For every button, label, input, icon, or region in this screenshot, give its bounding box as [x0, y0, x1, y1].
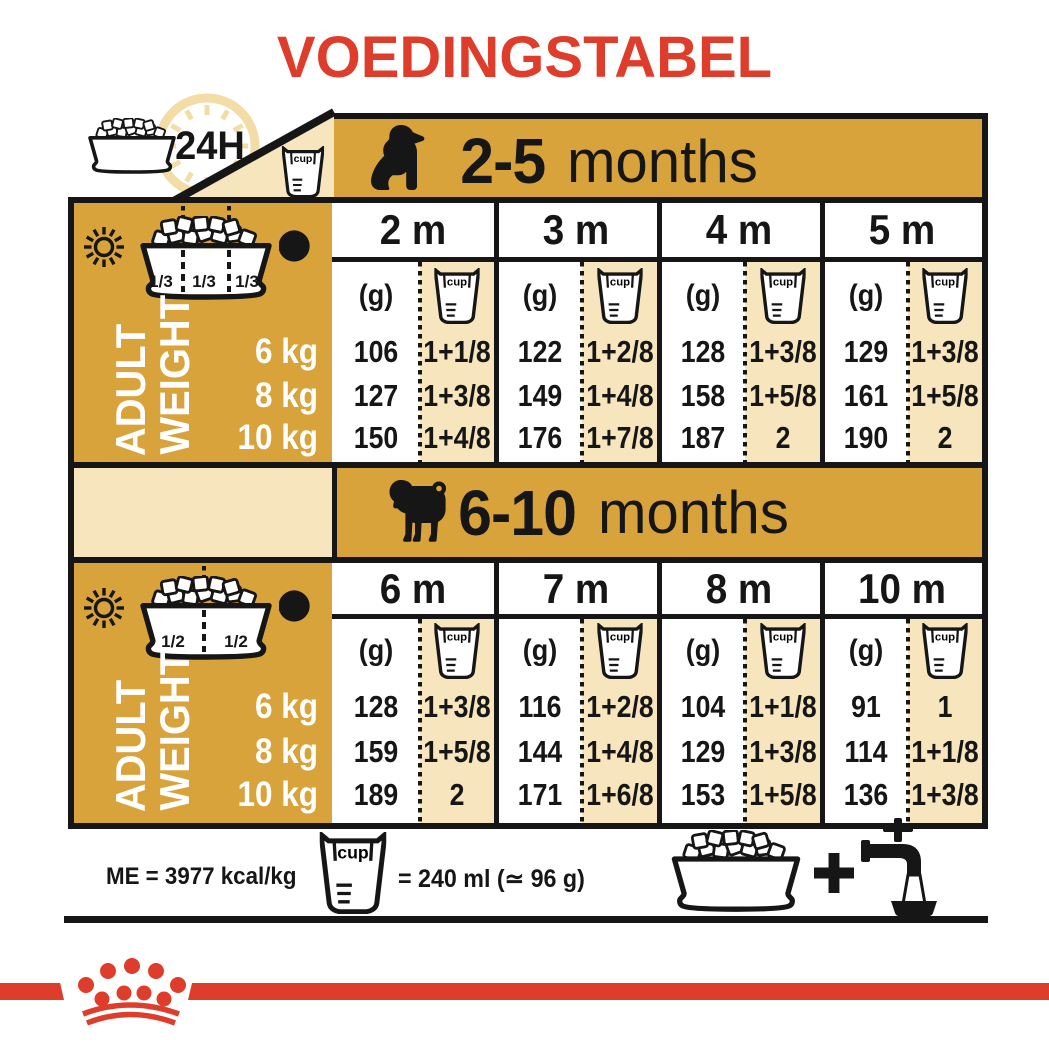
svg-text:cup: cup — [447, 276, 467, 288]
age-unit: months — [598, 478, 789, 547]
age-unit: months — [566, 127, 757, 196]
month-header: 6 m — [349, 563, 478, 614]
grams-unit: (g) — [830, 633, 902, 669]
moon-icon — [279, 226, 313, 266]
month-header: 5 m — [838, 203, 967, 257]
cups-value: 1+5/8 — [736, 378, 831, 414]
brand-stripe-left — [0, 983, 64, 1000]
cups-value: 1+1/8 — [410, 334, 505, 370]
bowl-fraction: 1/3 — [183, 268, 225, 296]
measuring-cup-icon: cup — [922, 268, 968, 324]
cups-value: 2 — [736, 420, 831, 456]
cups-value: 1 — [898, 689, 993, 725]
cups-value: 1+3/8 — [898, 777, 993, 813]
age-range: 6-10 — [458, 476, 576, 550]
cups-value: 1+6/8 — [573, 777, 668, 813]
column-border — [332, 468, 337, 557]
measuring-cup-icon: cup — [597, 623, 643, 679]
age-band-2-5-title: 2-5 months — [458, 119, 760, 203]
grams-unit: (g) — [340, 278, 412, 314]
grams-unit: (g) — [340, 633, 412, 669]
cups-value: 1+5/8 — [898, 378, 993, 414]
cups-value: 1+4/8 — [573, 734, 668, 770]
weight-row-label: 8 kg — [210, 734, 318, 770]
month-header: 10 m — [838, 563, 967, 614]
cups-value: 1+2/8 — [573, 689, 668, 725]
grams-unit: (g) — [504, 633, 576, 669]
cups-value: 1+5/8 — [410, 734, 505, 770]
band-corner-cell — [74, 468, 332, 557]
age-range: 2-5 — [460, 124, 545, 198]
cups-value: 1+3/8 — [410, 689, 505, 725]
month-header: 2 m — [349, 203, 478, 257]
adult-weight-label: WEIGHT — [155, 678, 195, 811]
month-header: 3 m — [512, 203, 641, 257]
measuring-cup-icon: cup — [434, 268, 480, 324]
food-bowl-icon — [656, 830, 816, 918]
cups-value: 1+4/8 — [573, 378, 668, 414]
cups-value: 2 — [898, 420, 993, 456]
page-title: VOEDINGSTABEL — [0, 24, 1049, 91]
cup-equivalence: = 240 ml (≃ 96 g) — [398, 864, 585, 894]
cups-value: 1+1/8 — [898, 734, 993, 770]
footer-rule — [64, 916, 988, 923]
pug-silhouette-icon — [388, 478, 450, 544]
cups-value: 1+7/8 — [573, 420, 668, 456]
cups-value: 2 — [410, 777, 505, 813]
measuring-cup-icon: cup — [922, 623, 968, 679]
sun-icon — [80, 223, 128, 271]
cups-value: 1+1/8 — [736, 689, 831, 725]
svg-text:cup: cup — [935, 631, 955, 643]
weight-row-label: 6 kg — [210, 689, 318, 725]
bowl-fraction: 1/2 — [215, 628, 257, 656]
plus-icon — [814, 853, 854, 893]
svg-text:cup: cup — [294, 153, 313, 165]
age-band-6-10-title: 6-10 months — [455, 468, 792, 557]
weight-row-label: 10 kg — [210, 420, 318, 456]
month-header: 7 m — [512, 563, 641, 614]
cups-value: 1+5/8 — [736, 777, 831, 813]
bowl-fraction: 1/3 — [140, 268, 182, 296]
grams-unit: (g) — [830, 278, 902, 314]
svg-text:cup: cup — [447, 631, 467, 643]
measuring-cup-icon: cup — [760, 268, 806, 324]
measuring-cup-icon: cup — [434, 623, 480, 679]
adult-weight-label: WEIGHT — [155, 322, 195, 455]
measuring-cup-icon: cup — [316, 832, 390, 914]
cups-value: 1+3/8 — [898, 334, 993, 370]
month-header: 8 m — [675, 563, 804, 614]
feeding-table-label: VOEDINGSTABEL 24H cup 2-5 mont — [0, 0, 1049, 1049]
svg-text:cup: cup — [337, 843, 369, 863]
month-header: 4 m — [675, 203, 804, 257]
weight-row-label: 8 kg — [210, 378, 318, 414]
moon-icon — [279, 586, 313, 626]
cups-value: 1+3/8 — [410, 378, 505, 414]
brand-stripe-right — [188, 983, 1049, 1000]
cups-value: 1+3/8 — [736, 334, 831, 370]
measuring-cup-icon: cup — [760, 623, 806, 679]
adult-weight-label: ADULT — [111, 680, 151, 813]
metabolizable-energy: ME = 3977 kcal/kg — [106, 862, 296, 892]
water-tap-icon — [850, 818, 948, 922]
bowl-divider — [202, 610, 206, 652]
puppy-silhouette-icon — [368, 124, 426, 192]
grams-unit: (g) — [667, 278, 739, 314]
weight-row-label: 10 kg — [210, 777, 318, 813]
sun-icon — [80, 584, 128, 632]
svg-text:cup: cup — [773, 276, 793, 288]
measuring-cup-icon: cup — [281, 146, 325, 198]
svg-text:cup: cup — [935, 276, 955, 288]
cups-value: 1+2/8 — [573, 334, 668, 370]
measuring-cup-icon: cup — [597, 268, 643, 324]
grams-unit: (g) — [504, 278, 576, 314]
cups-value: 1+3/8 — [736, 734, 831, 770]
adult-weight-label: ADULT — [111, 324, 151, 457]
svg-text:cup: cup — [610, 276, 630, 288]
bowl-fraction: 1/3 — [226, 268, 268, 296]
cups-value: 1+4/8 — [410, 420, 505, 456]
svg-text:cup: cup — [610, 631, 630, 643]
weight-row-label: 6 kg — [210, 334, 318, 370]
royal-canin-crown-logo — [58, 946, 188, 1028]
grams-unit: (g) — [667, 633, 739, 669]
svg-text:cup: cup — [773, 631, 793, 643]
